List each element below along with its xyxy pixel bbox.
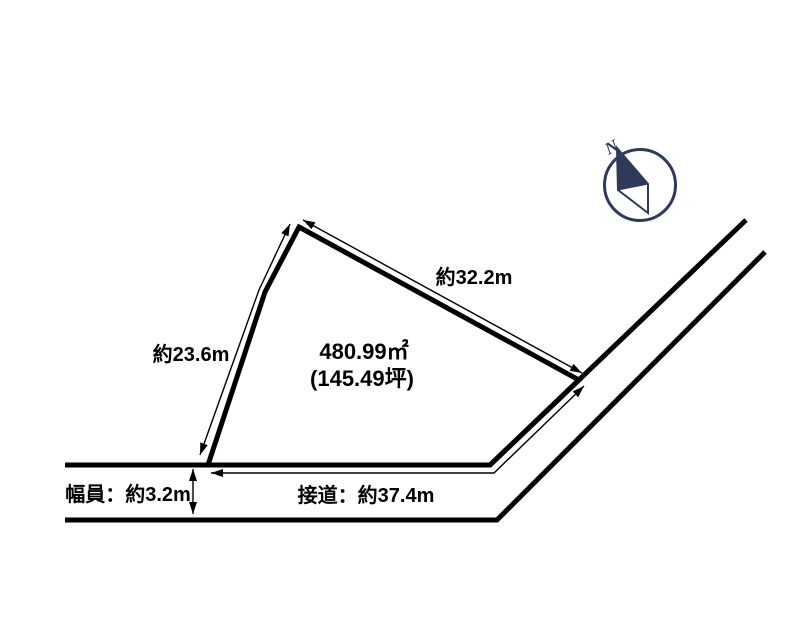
compass-needle-north-half xyxy=(617,148,648,190)
compass: N xyxy=(601,136,676,221)
label-area-square-meters: 480.99㎡ xyxy=(319,339,408,364)
label-left-edge-length: 約23.6m xyxy=(153,342,230,366)
land-plot-diagram: 約32.2m 約23.6m 480.99㎡ (145.49坪) 接道：約37.4… xyxy=(0,0,800,621)
label-road-width: 幅員：約3.2m xyxy=(65,482,191,506)
label-road-frontage: 接道：約37.4m xyxy=(298,483,435,507)
label-top-edge-length: 約32.2m xyxy=(436,265,513,289)
survey-drawing-svg: 約32.2m 約23.6m 480.99㎡ (145.49坪) 接道：約37.4… xyxy=(0,0,800,621)
dimension-line-left-edge xyxy=(200,224,290,455)
label-area-tsubo: (145.49坪) xyxy=(310,366,414,391)
